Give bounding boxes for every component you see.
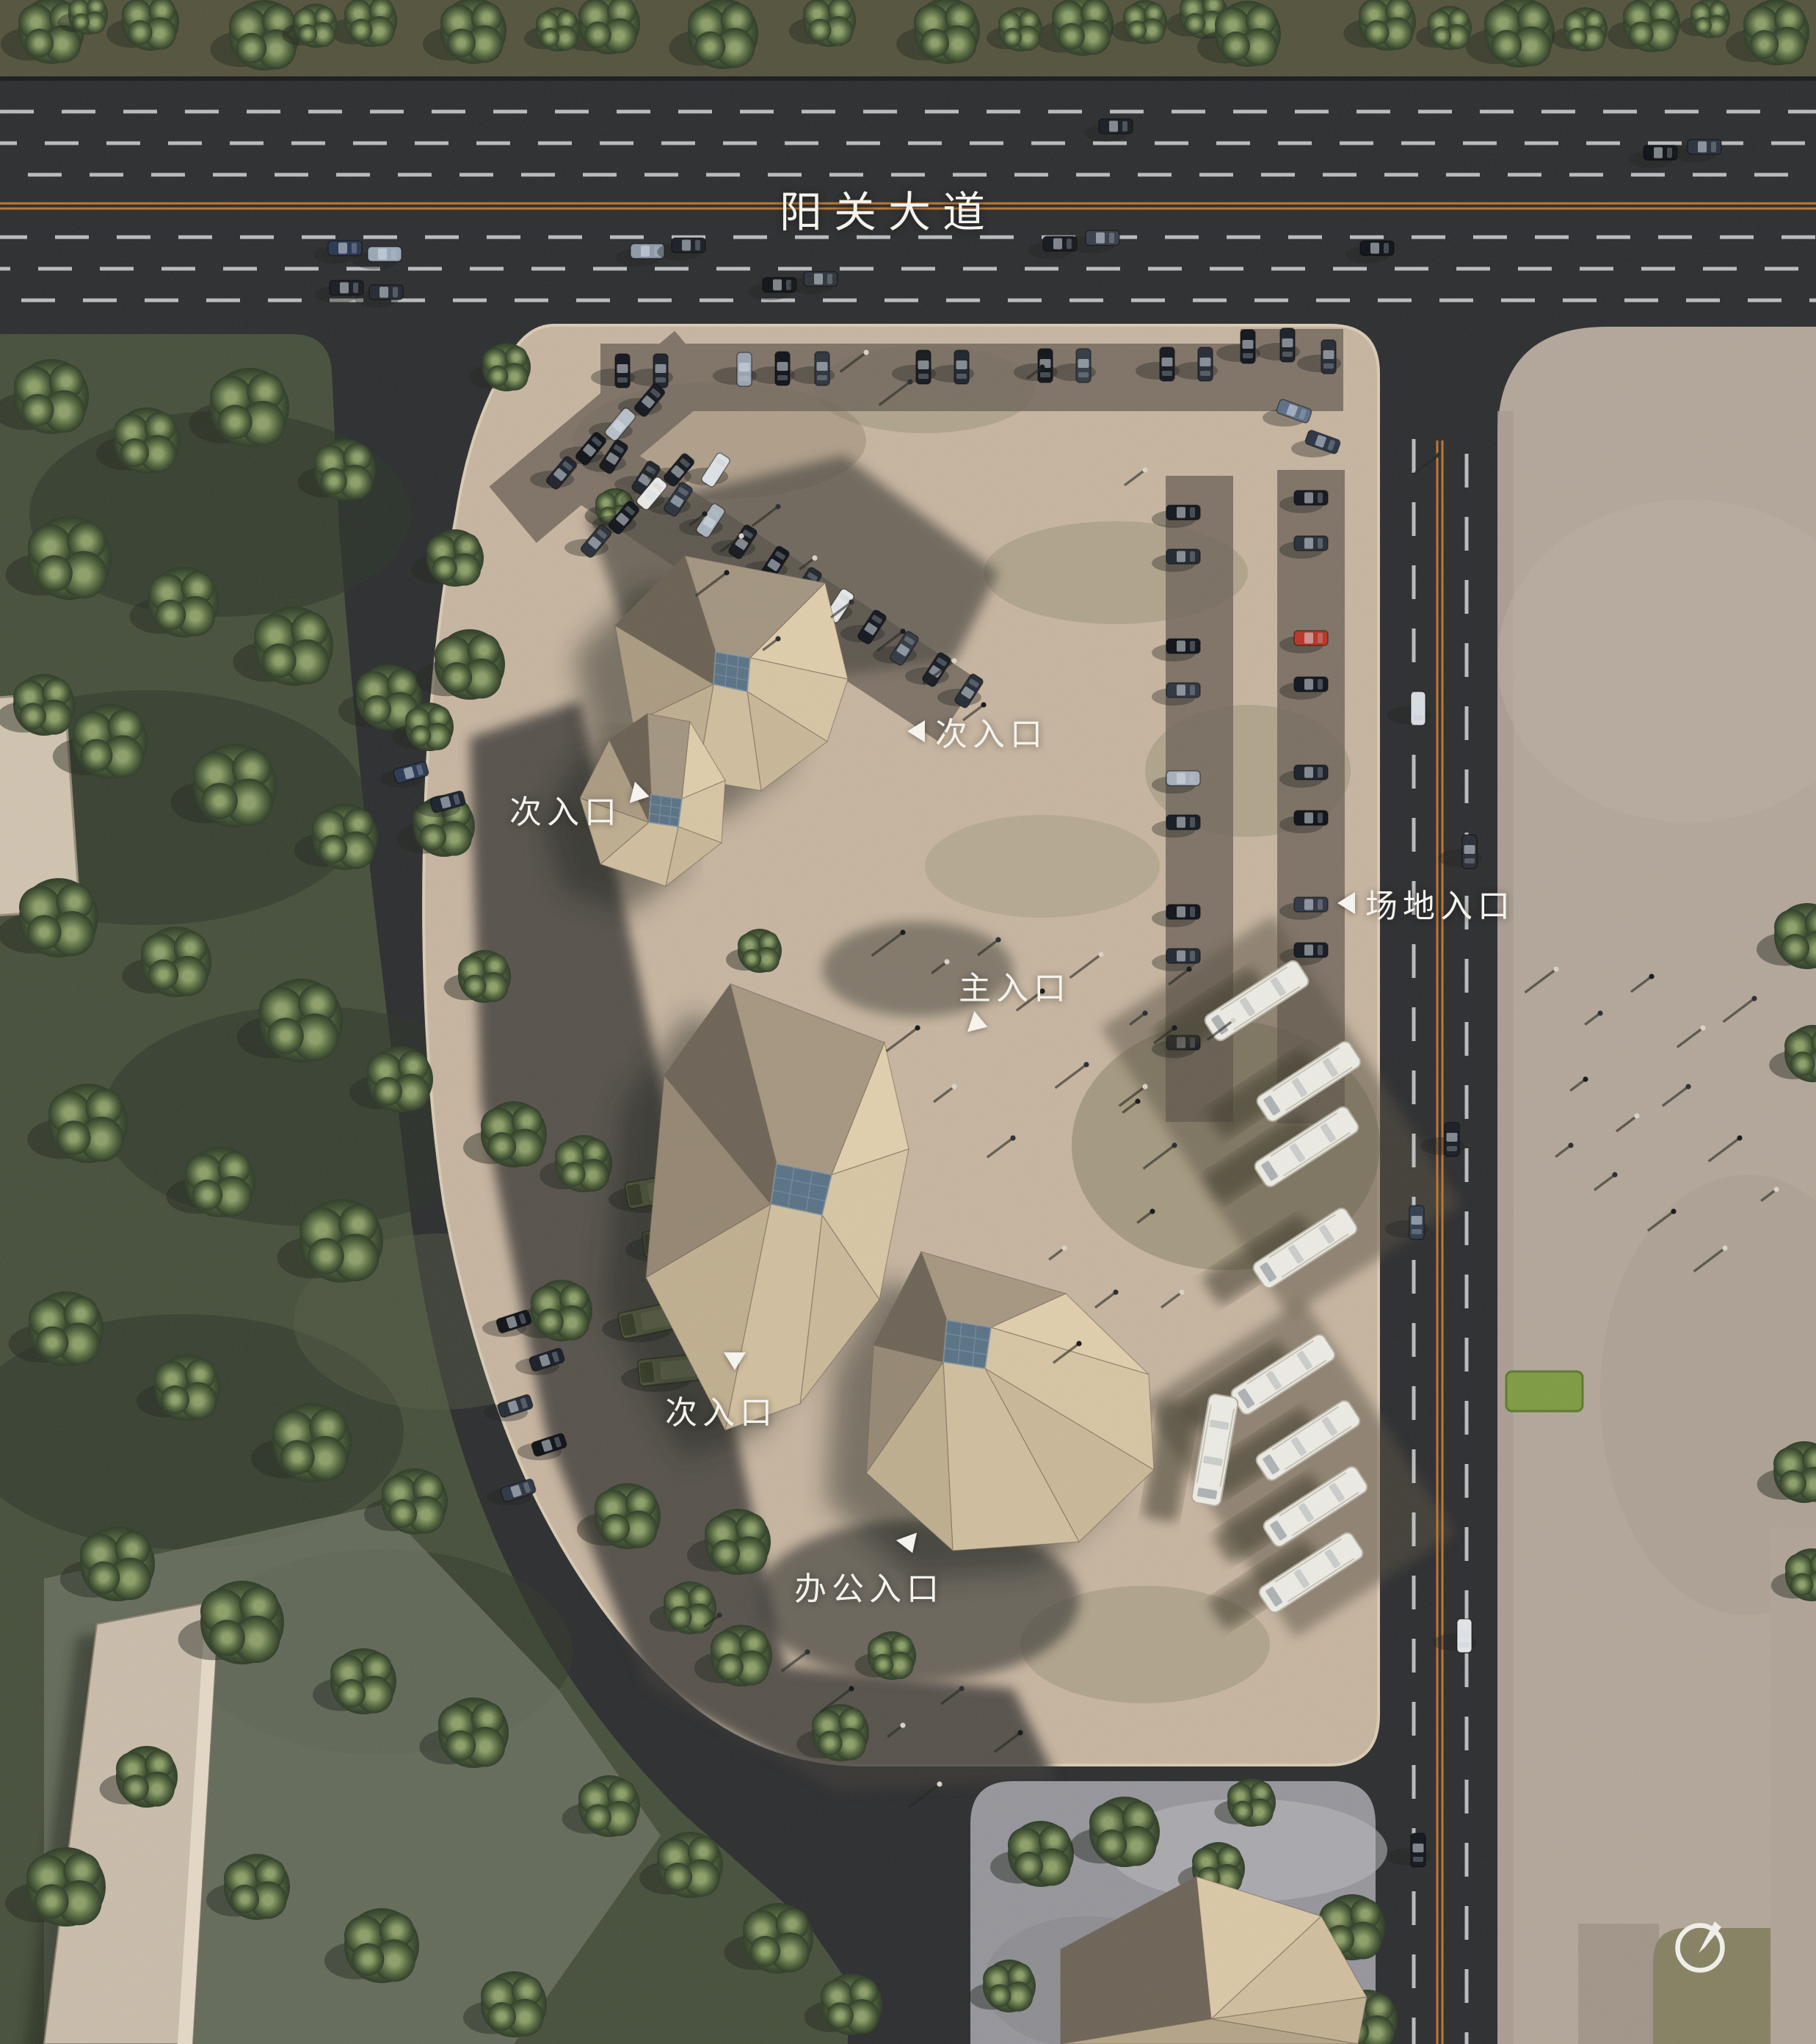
road-name-label: 阳关大道 xyxy=(780,178,997,239)
arrow-right-icon xyxy=(967,1011,991,1037)
secondary-entrance-lower-text: 次入口 xyxy=(665,1386,777,1433)
secondary-entrance-top-text: 次入口 xyxy=(935,708,1047,755)
secondary-entrance-top-label: 次入口 xyxy=(907,708,1047,755)
secondary-entrance-left-text: 次入口 xyxy=(509,786,622,833)
secondary-entrance-lower-label: 次入口 xyxy=(665,1386,777,1433)
arrow-left-icon xyxy=(1337,892,1355,914)
arrow-down-icon xyxy=(724,1352,746,1370)
office-entrance-arrow xyxy=(898,1536,920,1554)
main-entrance-arrow xyxy=(970,1013,988,1035)
road-name-text: 阳关大道 xyxy=(780,178,997,239)
main-entrance-label: 主入口 xyxy=(959,962,1071,1009)
arrow-left-icon xyxy=(907,720,925,742)
secondary-entrance-lower-arrow xyxy=(724,1352,746,1370)
office-entrance-text: 办公入口 xyxy=(794,1562,944,1609)
aerial-site-plan xyxy=(0,0,1816,2044)
site-entrance-text: 场地入口 xyxy=(1365,880,1515,927)
grain-overlay xyxy=(0,0,1816,2044)
site-plan-rendering: 阳关大道 次入口 次入口 场地入口 主入口 次入口 办公入口 xyxy=(0,0,1816,2044)
arrow-right-icon xyxy=(630,782,653,808)
main-entrance-text: 主入口 xyxy=(959,962,1071,1009)
office-entrance-label: 办公入口 xyxy=(794,1562,944,1609)
arrow-down-icon xyxy=(896,1533,923,1557)
secondary-entrance-left-label: 次入口 xyxy=(509,786,650,833)
site-entrance-label: 场地入口 xyxy=(1337,880,1515,927)
